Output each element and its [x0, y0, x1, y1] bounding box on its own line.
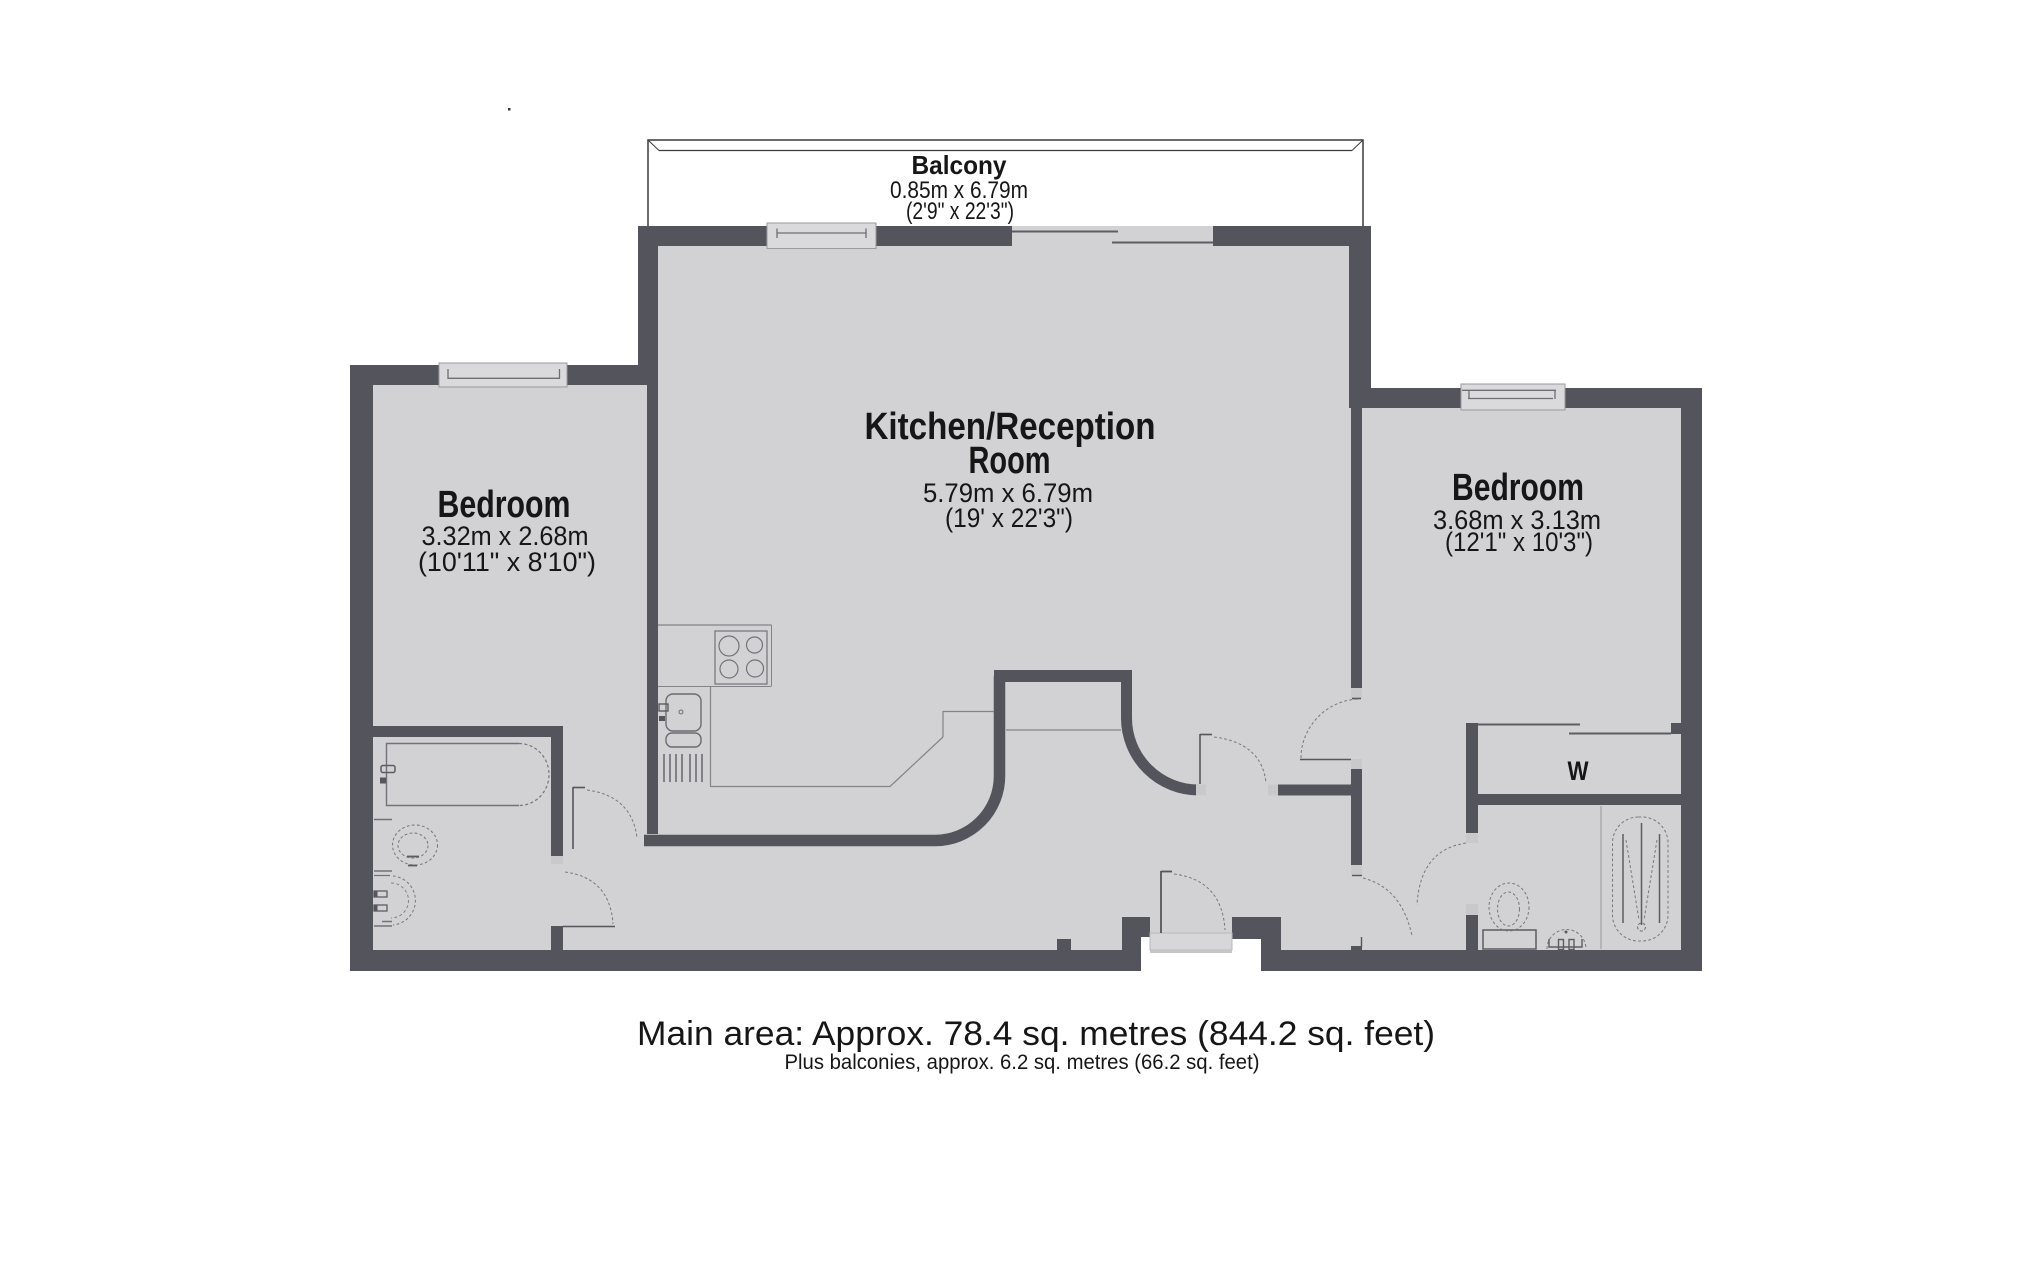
svg-text:Plus balconies, approx. 6.2 sq: Plus balconies, approx. 6.2 sq. metres (…	[785, 1051, 1260, 1074]
svg-text:Room: Room	[969, 440, 1051, 482]
svg-text:(10'11" x 8'10"): (10'11" x 8'10")	[418, 547, 596, 577]
svg-text:Main area: Approx. 78.4 sq. me: Main area: Approx. 78.4 sq. metres (844.…	[637, 1015, 1435, 1053]
svg-text:(2'9" x 22'3"): (2'9" x 22'3")	[906, 198, 1014, 225]
svg-text:(12'1" x 10'3"): (12'1" x 10'3")	[1445, 527, 1593, 557]
svg-text:Bedroom: Bedroom	[1452, 467, 1584, 509]
svg-text:W: W	[1568, 756, 1589, 786]
svg-text:Bedroom: Bedroom	[438, 484, 571, 526]
svg-text:(19' x 22'3"): (19' x 22'3")	[945, 503, 1073, 533]
svg-text:Balcony: Balcony	[912, 150, 1007, 180]
